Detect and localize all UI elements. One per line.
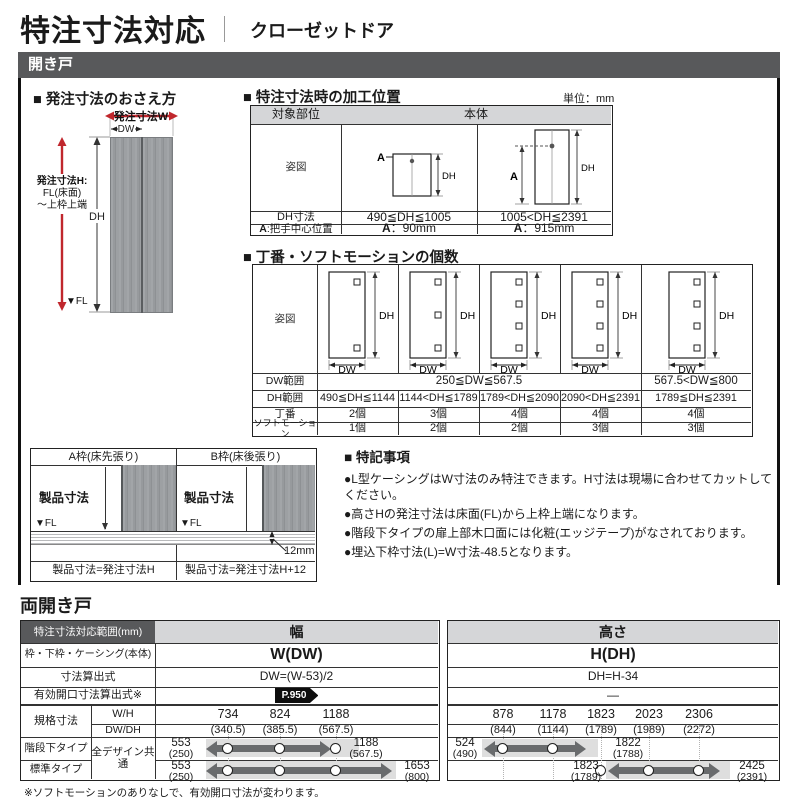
hinge-mark [694, 345, 700, 351]
range-sub: (250) [161, 772, 201, 783]
arrowhead [111, 127, 117, 132]
arrowhead [436, 154, 441, 160]
hinge-mark [435, 279, 441, 285]
hinge-mark [516, 301, 522, 307]
range-arrow-right [381, 763, 392, 779]
h-size-sub: (1789) [576, 724, 626, 737]
arrowhead [669, 363, 675, 368]
dw-label: DW [419, 364, 437, 373]
product-dim-line [246, 467, 247, 537]
title-divider [224, 16, 225, 42]
catalog-page: 特注寸法対応 クローゼットドア 開き戸 ■ 発注寸法のおさえ方 発注寸法W DW… [0, 0, 800, 800]
size-marker [497, 743, 508, 754]
arrowhead [521, 363, 527, 368]
order-h-label-1: 発注寸法H: [36, 174, 88, 187]
width-header: 幅 [155, 621, 438, 643]
dw-label: DW [118, 124, 135, 135]
dw-label: DW [500, 364, 518, 373]
row-label-dh-range: DH範囲 [253, 390, 317, 407]
size-marker [274, 765, 285, 776]
hinge-table: 姿図 DH DW [252, 264, 753, 437]
w-size-sub: (567.5) [306, 724, 366, 737]
footnote: ※ソフトモーションのありなしで、有効開口寸法が変わります。 [24, 785, 325, 800]
arrowhead [373, 352, 378, 358]
a-bold: A [382, 222, 391, 236]
range-sub: (250) [161, 749, 201, 760]
arrowhead [440, 363, 446, 368]
dh-label: DH [442, 171, 456, 182]
dh-range-cell: 1789≦DH≦2391 [641, 390, 751, 407]
range-arrow-right [575, 741, 586, 757]
dh-range-cell: 1144<DH≦1789 [398, 390, 479, 407]
size-marker [693, 765, 704, 776]
shared-design-label: 全デザイン共通 [91, 737, 155, 779]
arrowhead [136, 127, 142, 132]
arrowhead [699, 363, 705, 368]
fl-label: ▼FL [66, 296, 88, 307]
row-label-figure: 姿図 [253, 265, 317, 373]
hinge-mark [597, 345, 603, 351]
hinge-mark [694, 323, 700, 329]
order-h-label-2: FL(床面) [43, 186, 81, 199]
hinge-figure-2: DH DW [317, 266, 398, 373]
arrowhead [454, 272, 459, 278]
unit-label: 単位：mm [563, 90, 614, 106]
soft-count-cell: 3個 [641, 422, 751, 435]
arrowhead [410, 363, 416, 368]
door-section [121, 465, 176, 531]
w-size: 1188 [306, 705, 366, 724]
page-ref-badge: P.950 [275, 688, 319, 704]
range-sub: (2391) [728, 772, 776, 783]
page-subtitle: クローゼットドア [250, 17, 394, 43]
formula-w-value: DW=(W-53)/2 [155, 667, 438, 687]
figure-tall-door: A DH [477, 124, 611, 211]
range-max: 1822(1788) [605, 738, 651, 760]
hinge-mark [694, 301, 700, 307]
hinge-mark [694, 279, 700, 285]
frame-b-diagram: 製品寸法 ▼FL 12mm [176, 465, 315, 561]
handle-mark [550, 144, 555, 149]
arrowhead [575, 130, 580, 136]
col-header-target: 対象部位 [251, 106, 341, 124]
hinge-mark [435, 345, 441, 351]
arrowhead [535, 272, 540, 278]
hinge-mark [597, 279, 603, 285]
floor-layers [31, 532, 176, 544]
frame-a-diagram: 製品寸法 ▼FL [31, 465, 176, 561]
range-max: 1653(800) [395, 761, 439, 783]
row-label-opening: 有効開口寸法算出式※ [21, 687, 155, 704]
a-label: A [510, 171, 518, 183]
hinge-mark [354, 345, 360, 351]
notes-heading: ■ 特記事項 [344, 446, 778, 466]
w-size: 734 [198, 705, 258, 724]
a-bold: A [514, 222, 523, 236]
arrowhead [270, 531, 275, 537]
row-label-figure: 姿図 [251, 124, 341, 211]
range-min: 553(250) [161, 738, 201, 760]
dh-label: DH [541, 310, 556, 322]
fl-label: ▼FL [35, 518, 57, 529]
soft-count-cell: 2個 [479, 422, 560, 435]
corner-header: 特注寸法対応範囲(mm) [21, 621, 155, 643]
frame-b-header: B枠(床後張り) [176, 449, 315, 465]
frame-a-formula: 製品寸法=発注寸法H [31, 561, 176, 580]
row-label-normal-type: 標準タイプ [21, 760, 91, 779]
arrowhead [94, 304, 101, 312]
frame-a-header: A枠(床先張り) [31, 449, 176, 465]
dh-label: DH [719, 310, 734, 322]
order-w-label: 発注寸法W [113, 109, 169, 123]
range-arrow-shaft [216, 767, 382, 774]
hinge-mark [516, 323, 522, 329]
hinge-mark [597, 323, 603, 329]
range-arrow-right [709, 763, 720, 779]
dw-label: DW [581, 364, 599, 373]
range-sub: (490) [449, 749, 481, 760]
note-item: ●高さHの発注寸法は床面(FL)から上枠上端になります。 [344, 507, 778, 523]
range-min: 553(250) [161, 761, 201, 783]
row-label-dwdh: DW/DH [91, 724, 155, 737]
figure-short-door: A DH [341, 124, 477, 211]
size-marker [547, 743, 558, 754]
arrowhead [454, 352, 459, 358]
h-size-sub: (844) [478, 724, 528, 737]
opening-w-cell: P.950 [155, 687, 438, 704]
hinge-mark [516, 279, 522, 285]
arrowhead [373, 272, 378, 278]
processing-heading: ■ 特注寸法時の加工位置 [243, 86, 401, 107]
note-item: ●階段下タイプの扉上部木口面には化粧(エッジテープ)がなされております。 [344, 526, 778, 542]
dh-label: DH [89, 211, 105, 223]
range-sub: (1789) [564, 772, 608, 783]
arrowhead [520, 146, 525, 152]
a-value: ：915mm [522, 222, 574, 236]
opening-h-cell: — [448, 687, 778, 704]
dh-label: DH [460, 310, 475, 322]
dh-label: DH [581, 163, 595, 174]
w-size: 824 [250, 705, 310, 724]
notes-block: ■ 特記事項 ●L型ケーシングはW寸法のみ特注できます。H寸法は現場に合わせてカ… [344, 446, 778, 564]
arrowhead [713, 272, 718, 278]
soft-count-cell: 1個 [317, 422, 398, 435]
hinge-count-cell: 4個 [560, 407, 641, 422]
a-label: A [377, 152, 385, 164]
dh-label: DH [379, 310, 394, 322]
arrowhead [58, 137, 67, 146]
range-sub: (800) [395, 772, 439, 783]
hinge-mark [597, 301, 603, 307]
size-marker [222, 765, 233, 776]
hinge-count-cell: 4個 [479, 407, 560, 422]
row-label-wh: W/H [91, 705, 155, 724]
product-dim-label: 製品寸法 [184, 487, 234, 506]
a-rest: :把手中心位置 [267, 223, 333, 235]
handle-value-cell: A：90mm [341, 224, 477, 234]
hinge-figure-4a: DH DW [479, 266, 560, 373]
row-label-formula: 寸法算出式 [21, 667, 155, 687]
arrowhead [575, 198, 580, 204]
a-value: ：90mm [391, 222, 436, 236]
hinge-figure-4c: DH DW [657, 266, 738, 373]
w-size-sub: (385.5) [250, 724, 310, 737]
dh-range-cell: 490≦DH≦1144 [317, 390, 398, 407]
size-marker [330, 743, 341, 754]
arrowhead [105, 112, 114, 121]
height-header: 高さ [448, 621, 778, 643]
arrowhead [102, 523, 108, 530]
arrowhead [572, 363, 578, 368]
size-marker [643, 765, 654, 776]
h-size: 2023 [624, 705, 674, 724]
hinge-mark [435, 312, 441, 318]
h-size-sub: (2272) [674, 724, 724, 737]
hinge-count-cell: 4個 [641, 407, 751, 422]
row-label-soft-motion: ソフトモーション [253, 422, 317, 435]
order-dims-svg: 発注寸法W DW 発注寸法H: FL(床面) ～上枠上端 DH ▼FL [30, 103, 235, 328]
row-label-standard-sizes: 規格寸法 [21, 705, 91, 737]
product-dim-line [105, 467, 106, 529]
dw-label: DW [338, 364, 356, 373]
dh-range-cell: 1789<DH≦2090 [479, 390, 560, 407]
arrowhead [359, 363, 365, 368]
h-size: 1178 [528, 705, 578, 724]
note-item: ●L型ケーシングはW寸法のみ特注できます。H寸法は現場に合わせてカットしてくださ… [344, 472, 778, 503]
fl-label: ▼FL [180, 518, 202, 529]
dw-range-cell: 250≦DW≦567.5 [317, 373, 641, 390]
handle-value-cell: A：915mm [477, 224, 611, 234]
h-size: 2306 [674, 705, 724, 724]
arrowhead [491, 363, 497, 368]
hinge-mark [516, 345, 522, 351]
size-marker [222, 743, 233, 754]
frame-h-value: H(DH) [448, 643, 778, 667]
range-min: 524(490) [449, 738, 481, 760]
frame-w-value: W(DW) [155, 643, 438, 667]
arrowhead [94, 137, 101, 145]
range-min: 1823(1789) [564, 761, 608, 783]
dw-label: DW [678, 364, 696, 373]
arrowhead [169, 112, 178, 121]
range-sub: (1788) [605, 749, 651, 760]
section-bar-hinged-door: 開き戸 [18, 52, 780, 78]
size-marker [330, 765, 341, 776]
double-door-table-height: 高さ H(DH) DH=H-34 — 878 1178 1823 2023 23… [447, 620, 780, 781]
dh-range-cell: 2090<DH≦2391 [560, 390, 641, 407]
arrowhead [602, 363, 608, 368]
page-title: 特注寸法対応 [20, 6, 206, 50]
note-item: ●埋込下枠寸法(L)=W寸法-48.5となります。 [344, 545, 778, 561]
row-label-dw-range: DW範囲 [253, 373, 317, 390]
hinge-mark [354, 279, 360, 285]
subfloor-line [31, 544, 176, 545]
w-size-sub: (340.5) [198, 724, 258, 737]
row-label-stair-type: 階段下タイプ [21, 737, 91, 760]
door-section [262, 465, 315, 531]
order-h-label-3: ～上枠上端 [37, 198, 87, 211]
hinge-count-cell: 2個 [317, 407, 398, 422]
processing-table: 対象部位 本体 姿図 A DH A [250, 105, 613, 236]
h-size-sub: (1144) [528, 724, 578, 737]
col-header-body: 本体 [341, 106, 611, 124]
range-max: 1188(567.5) [343, 738, 389, 760]
soft-count-cell: 3個 [560, 422, 641, 435]
arrowhead [616, 272, 621, 278]
section-title-double-door: 両開き戸 [20, 592, 92, 618]
dh-label: DH [622, 310, 637, 322]
h-size: 878 [478, 705, 528, 724]
hinge-count-cell: 3個 [398, 407, 479, 422]
frame-table: A枠(床先張り) B枠(床後張り) 製品寸法 ▼FL 製品寸法 ▼FL [30, 448, 317, 582]
row-label-handle: A:把手中心位置 [251, 224, 341, 234]
product-dim-label: 製品寸法 [39, 487, 89, 506]
arrowhead [520, 198, 525, 204]
hinge-figure-4b: DH DW [560, 266, 641, 373]
arrowhead [436, 190, 441, 196]
formula-h-value: DH=H-34 [448, 667, 778, 687]
frame-b-formula: 製品寸法=発注寸法H+12 [176, 561, 315, 580]
double-door-table-width: 特注寸法対応範囲(mm) 幅 枠・下枠・ケーシング(本体) W(DW) 寸法算出… [20, 620, 440, 781]
arrowhead [616, 352, 621, 358]
gap-label: 12mm [284, 545, 315, 557]
soft-count-cell: 2個 [398, 422, 479, 435]
handle-mark [410, 159, 414, 163]
arrowhead [713, 352, 718, 358]
dw-range-cell: 567.5<DW≦800 [641, 373, 751, 390]
arrowhead [329, 363, 335, 368]
range-max: 2425(2391) [728, 761, 776, 783]
range-sub: (567.5) [343, 749, 389, 760]
a-bold: A [259, 223, 267, 235]
row-label-frame: 枠・下枠・ケーシング(本体) [21, 643, 155, 667]
h-size: 1823 [576, 705, 626, 724]
h-size-sub: (1989) [624, 724, 674, 737]
hinge-figure-3: DH DW [398, 266, 479, 373]
arrowhead [535, 352, 540, 358]
size-marker [274, 743, 285, 754]
